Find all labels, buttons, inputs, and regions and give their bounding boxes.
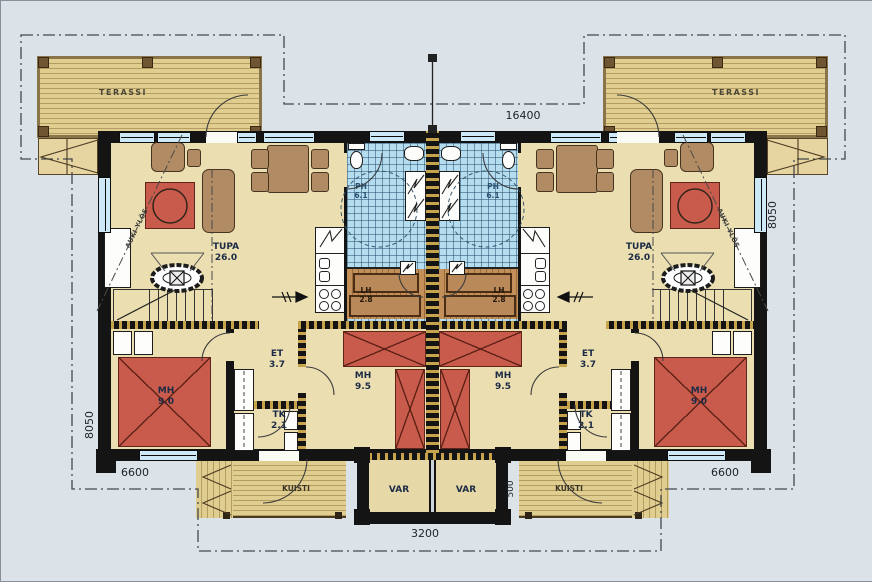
fireplace-right <box>661 253 714 291</box>
section-arrows <box>272 292 593 302</box>
door-swing-arcs <box>202 95 663 503</box>
closet-sliding-lines <box>244 371 621 449</box>
open-above-dashdot-lines <box>97 135 768 323</box>
fireplace-left <box>151 253 204 291</box>
appliance-zigzags <box>320 175 545 272</box>
round-table-outlines <box>153 189 712 223</box>
step-triangles <box>41 139 824 515</box>
floor-plan: TERASSI TERASSI TUPA26.0 TUPA26.0 PH6.1 … <box>0 0 872 582</box>
section-cut-line <box>428 54 437 133</box>
shower-area-circles <box>341 171 524 247</box>
annotations-layer <box>1 1 872 581</box>
